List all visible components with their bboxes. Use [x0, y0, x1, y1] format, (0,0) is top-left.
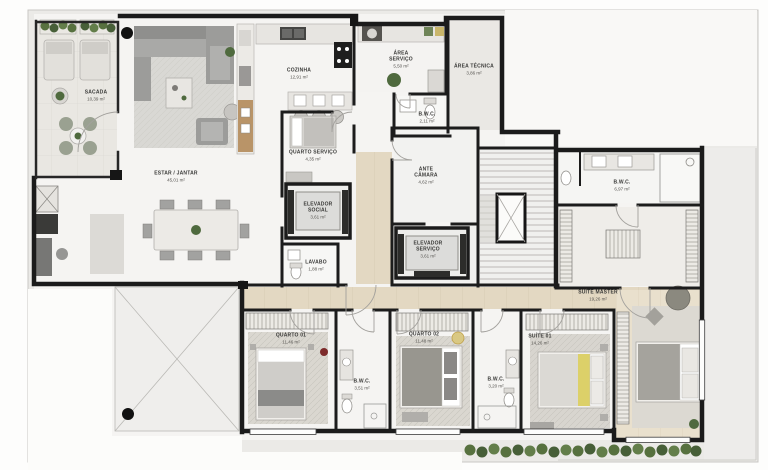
- floor-plan: SACADA10,39 m² ESTAR / JANTAR45,01 m² CO…: [0, 0, 768, 470]
- void-area: [115, 287, 239, 431]
- room-label-sacada: SACADA10,39 m²: [85, 90, 108, 101]
- window: [524, 429, 604, 434]
- pillow: [682, 348, 698, 372]
- bed-runner: [578, 354, 590, 406]
- ironing-board: [428, 70, 444, 92]
- toilet: [561, 171, 571, 185]
- decor: [320, 348, 328, 356]
- lounge-chair-back: [82, 42, 108, 54]
- dresser: [286, 172, 312, 182]
- sink: [343, 358, 351, 366]
- duvet: [638, 344, 680, 400]
- nightstand: [250, 344, 256, 350]
- pillows: [258, 350, 304, 362]
- room-label-cozinha: COZINHA12,91 m²: [287, 68, 311, 79]
- sofa-return: [134, 57, 151, 101]
- plant: [225, 47, 235, 57]
- window: [626, 437, 690, 442]
- wardrobe: [617, 312, 629, 424]
- wardrobe: [686, 210, 698, 282]
- nightstand: [600, 344, 608, 351]
- pillow: [682, 374, 698, 398]
- plant: [689, 419, 699, 429]
- sink: [618, 156, 632, 167]
- desk: [36, 238, 52, 276]
- room-label-bwc-servico: B.W.C.2,11 m²: [418, 112, 435, 123]
- pillow: [591, 356, 603, 379]
- column: [122, 408, 134, 420]
- room-label-ante-camara: ANTE CÂMARA4,62 m²: [413, 167, 439, 184]
- plant: [387, 73, 401, 87]
- room-label-bwc-01: B.W.C.3,51 m²: [353, 379, 370, 390]
- hall-floor: [356, 152, 392, 284]
- column: [121, 27, 133, 39]
- sink: [288, 250, 300, 260]
- desk-chair: [56, 248, 68, 260]
- sink: [509, 357, 517, 365]
- nightstand: [308, 344, 314, 350]
- room-label-quarto-servico: QUARTO SERVIÇO4,35 m²: [289, 150, 337, 161]
- window: [250, 429, 316, 434]
- lounge-chair-back: [46, 42, 72, 54]
- mirror-decor: [452, 332, 464, 344]
- window: [396, 429, 460, 434]
- nightstand: [600, 414, 608, 421]
- office-rug: [90, 214, 124, 274]
- room-label-lavabo: LAVABO1,88 m²: [305, 260, 327, 271]
- pillow: [591, 381, 603, 404]
- table-plant: [191, 225, 201, 235]
- closet-island: [606, 230, 640, 258]
- wardrobe: [526, 314, 608, 330]
- room-label-quarto-02: QUARTO 0211,48 m²: [409, 332, 439, 343]
- room-label-elevador-servico: ELEVADOR SERVIÇO3,61 m²: [413, 241, 443, 258]
- pillow: [292, 118, 302, 146]
- bench: [402, 412, 428, 422]
- toilet: [504, 393, 514, 407]
- cooktop: [334, 42, 352, 68]
- room-label-quarto-01: QUARTO 0111,46 m²: [276, 333, 306, 344]
- room-label-estar-jantar: ESTAR / JANTAR45,01 m²: [154, 171, 197, 182]
- window: [699, 320, 704, 400]
- bed-throw: [258, 390, 304, 406]
- cabinet: [36, 214, 58, 234]
- staircase: [480, 194, 525, 242]
- room-label-suite-master: SUÍTE MASTER19,26 m²: [578, 290, 618, 301]
- pillow: [444, 352, 457, 374]
- pillow: [444, 378, 457, 400]
- room-label-suite-01: SUÍTE 0114,26 m²: [528, 334, 551, 345]
- tv-cabinet-wall: [237, 24, 254, 154]
- wardrobe: [396, 313, 468, 331]
- toilet: [342, 399, 352, 413]
- room-label-bwc-master: B.W.C.6,97 m²: [613, 180, 630, 191]
- bedroom-02-furniture: [396, 313, 470, 426]
- wardrobe: [560, 210, 572, 282]
- wardrobe: [246, 313, 328, 329]
- sink: [592, 156, 606, 167]
- duvet: [402, 348, 442, 406]
- room-label-area-tecnica: ÁREA TÉCNICA3,86 m²: [454, 64, 494, 75]
- armchair: [666, 286, 690, 310]
- floor-plan-drawing: [0, 0, 768, 470]
- room-label-bwc-02: B.W.C.3,20 m²: [487, 377, 504, 388]
- room-label-elevador-social: ELEVADOR SOCIAL3,61 m²: [303, 202, 333, 219]
- duvet: [540, 354, 578, 406]
- coffee-table: [166, 78, 192, 108]
- room-label-area-servico: ÁREA SERVIÇO5,50 m²: [388, 51, 414, 68]
